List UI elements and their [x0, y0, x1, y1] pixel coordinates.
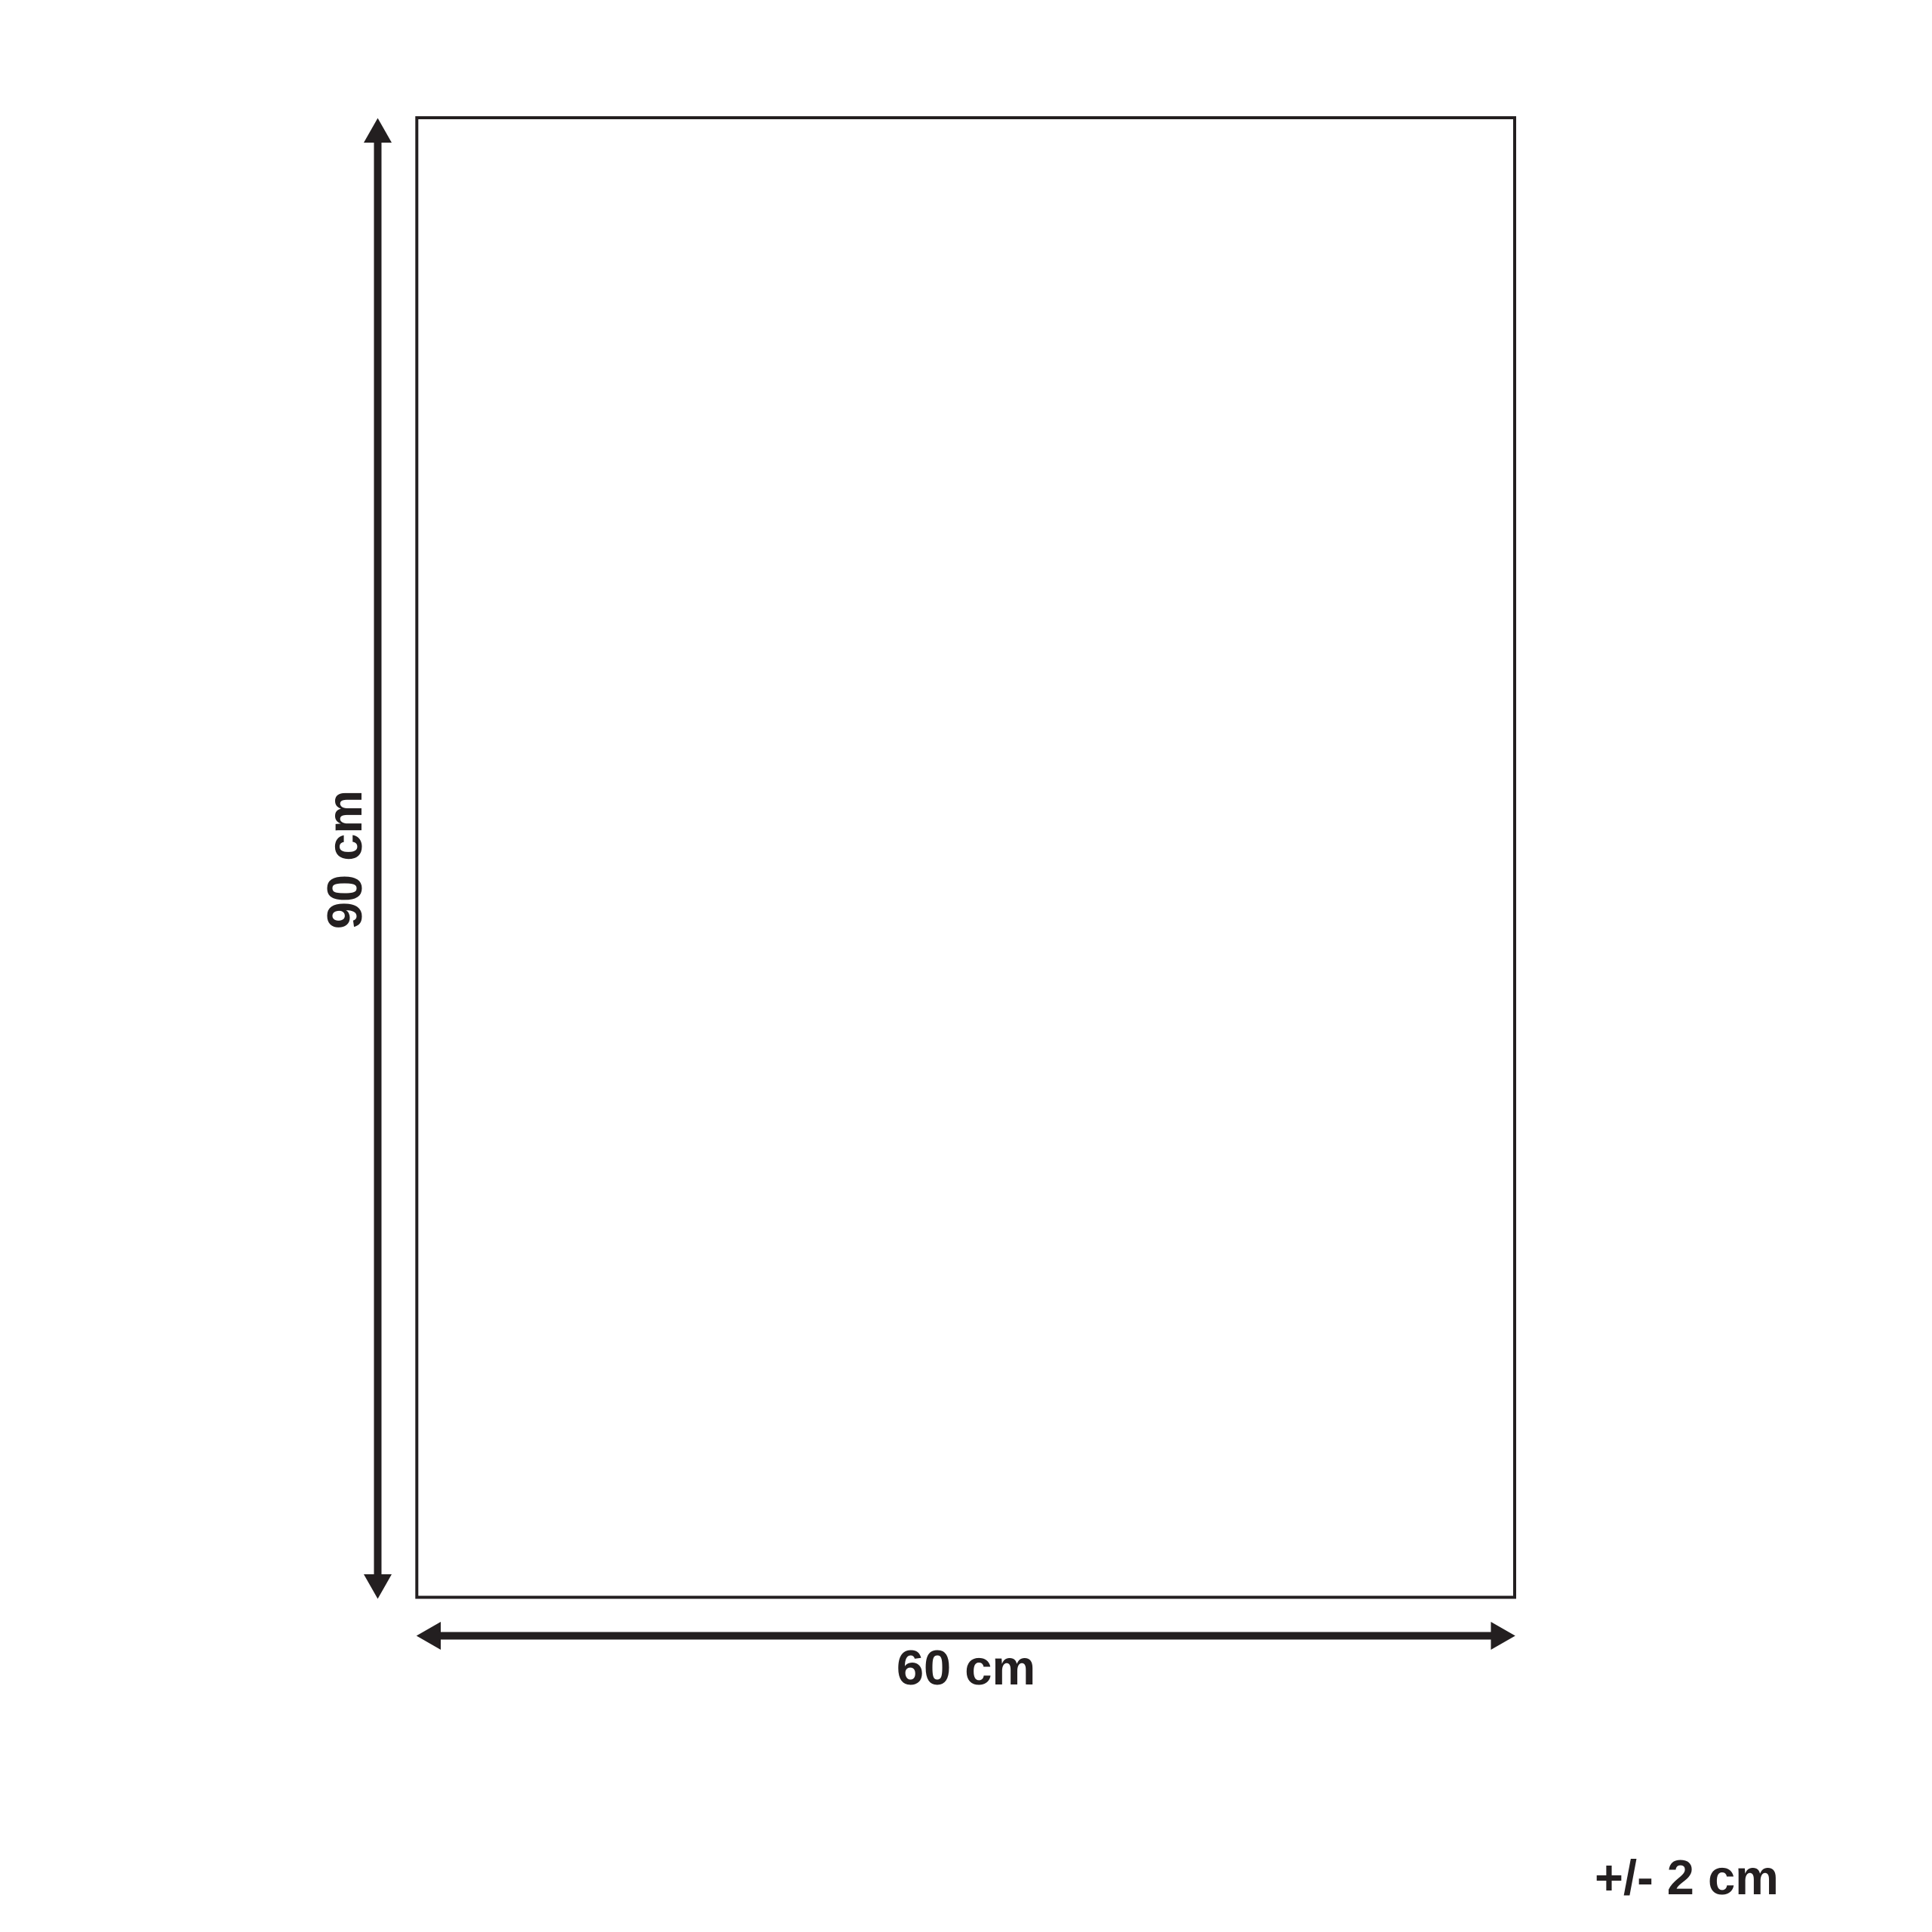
svg-text:90 cm: 90 cm	[317, 790, 372, 929]
svg-text:60 cm: 60 cm	[897, 1640, 1035, 1695]
svg-text:+/- 2 cm: +/- 2 cm	[1595, 1850, 1779, 1905]
